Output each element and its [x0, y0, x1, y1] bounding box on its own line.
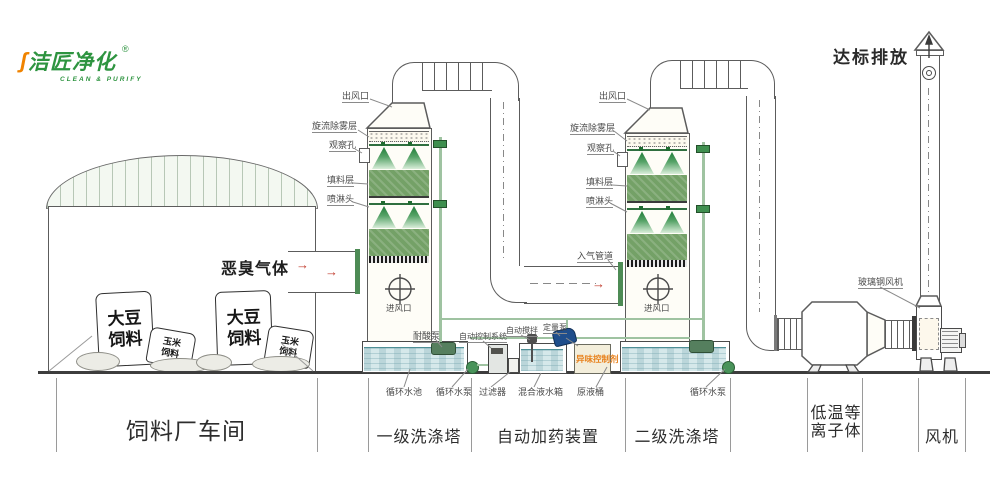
duct-centerline [503, 102, 504, 262]
spray-nozzle [408, 201, 412, 205]
flow-arrow: → [325, 265, 338, 278]
filter-label: 过滤器 [479, 388, 506, 397]
tower1-observation-port [359, 148, 370, 163]
auto-stir-label: 自动搅拌 [506, 327, 538, 337]
plasma-label-line2: 离子体 [810, 423, 861, 440]
feed-pile [76, 352, 120, 371]
plasma-logo-text: 洁匠净化 [821, 328, 849, 335]
fan-motor-cap [959, 333, 966, 348]
duct-elbow [746, 60, 775, 99]
feed-bag-label: 大豆饲料 [223, 306, 264, 350]
chimney-cap-icon [915, 32, 943, 50]
chimney-sensor-dot [926, 70, 932, 76]
flow-arrow: → [592, 277, 605, 290]
odor-agent-label: 异味控制剂 [576, 355, 619, 364]
plasma-inlet-pipe [777, 318, 804, 350]
section-label-workshop: 饲料厂车间 [126, 412, 246, 446]
section-tick [965, 378, 966, 452]
feed-pile [196, 354, 232, 371]
acid-pump-label: 耐酸泵 [413, 332, 440, 343]
feed-bag-label: 大豆饲料 [104, 307, 146, 352]
control-system-label: 自动控制系统 [459, 333, 507, 343]
discharge-arrowhead [926, 36, 932, 44]
tower1-demister-layer [369, 131, 429, 142]
spray-nozzle [381, 201, 385, 205]
spray-nozzle [639, 206, 643, 210]
plasma-label-line1: 低温等 [810, 405, 861, 422]
tower2-outlet-elbow [650, 60, 683, 108]
section-label-dosing: 自动加药装置 [497, 423, 599, 447]
logo-text: 洁匠净化 [28, 46, 116, 76]
stirrer-shaft [531, 343, 533, 362]
section-tick [918, 378, 919, 452]
mixing-tank-water [521, 349, 563, 371]
pump1-label: 循环水泵 [436, 388, 472, 397]
tower2-acid-pump [689, 340, 714, 353]
logo-swoosh-icon: ʃ [20, 48, 27, 74]
spray-nozzle [666, 147, 670, 151]
duct-elbow [490, 62, 519, 101]
tower1-airinlet-label: 进风口 [386, 304, 412, 313]
section-tick [625, 378, 626, 452]
tower2-duct-down [746, 96, 776, 316]
fan-foot [944, 358, 957, 371]
tower2-packing-layer2 [627, 234, 687, 260]
tower1-outlet-elbow [392, 62, 425, 108]
workshop-roof [46, 155, 318, 209]
tower2-demister-label: 旋流除雾层 [570, 124, 615, 135]
plasma-outlet-cone [867, 312, 885, 356]
tower2-spray-label: 喷淋头 [586, 197, 613, 208]
spray-supply-pipe [440, 318, 704, 320]
tower1-circulation-pump [466, 361, 479, 374]
fan-housing-inner [919, 318, 939, 350]
barrel-label: 原液桶 [577, 388, 604, 397]
section-tick [56, 378, 57, 452]
discharge-label: 达标排放 [833, 43, 909, 68]
tower2-inlet-flange [618, 262, 623, 306]
filter-unit [508, 358, 519, 373]
section-label-fan: 风机 [925, 423, 959, 447]
logo-reg-mark: ® [122, 44, 129, 54]
tower2-spray-pipe [702, 142, 705, 342]
section-tick [807, 378, 808, 452]
tower1-outlet-label: 出风口 [342, 92, 369, 103]
tower1-spray-label: 喷淋头 [327, 195, 354, 206]
chimney-flange [916, 50, 944, 56]
spray-nozzle [408, 142, 412, 146]
tower1-top-duct [422, 62, 492, 91]
spray-nozzle [381, 142, 385, 146]
tower1-acid-pump [431, 342, 456, 355]
tower2-packing-layer [627, 175, 687, 203]
tower1-observation-label: 观察孔 [329, 141, 356, 152]
section-tick [862, 378, 863, 452]
section-label-tower2: 二级洗涤塔 [634, 423, 719, 447]
spray-nozzle [639, 147, 643, 151]
frp-fan-label: 玻璃钢风机 [858, 278, 903, 289]
mixtank-label: 混合液水箱 [518, 388, 563, 397]
flow-arrow: → [296, 258, 309, 271]
pipe-valve [433, 140, 447, 148]
chimney-centerline [928, 88, 929, 296]
interstage-duct-horizontal [524, 266, 620, 304]
pool-label: 循环水池 [386, 388, 422, 397]
tower2-top-duct [680, 60, 748, 89]
tower2-demister-layer [627, 136, 687, 147]
tower2-support-grid [627, 260, 687, 267]
control-cabinet-screen [491, 348, 503, 354]
tower2-outlet-label: 出风口 [599, 92, 626, 103]
tower2-packing-label: 填料层 [586, 178, 613, 189]
duct-elbow [490, 264, 527, 303]
tower2-spray-header [627, 149, 687, 151]
plasma-outlet-pipe [885, 320, 913, 349]
section-tick [730, 378, 731, 452]
logo-tagline: CLEAN & PURIFY [60, 76, 143, 83]
pipe-valve [696, 205, 710, 213]
feed-pile [252, 356, 310, 372]
company-logo: ʃ 洁匠净化 ® CLEAN & PURIFY [18, 44, 148, 88]
duct-centerline [530, 283, 596, 284]
tower1-packing-layer2 [369, 229, 429, 256]
tower2-observation-label: 观察孔 [587, 144, 614, 155]
spray-nozzle [666, 206, 670, 210]
tower2-cone [625, 108, 688, 133]
tower2-circulation-pump [722, 361, 735, 374]
tower1-packing-layer [369, 170, 429, 198]
odor-gas-label: 恶臭气体 [221, 255, 289, 279]
tower1-demister-label: 旋流除雾层 [312, 122, 357, 133]
pipe-valve [696, 145, 710, 153]
metering-pump-label: 定量泵 [543, 324, 567, 334]
tower2-observation-port [617, 152, 628, 167]
tower2-airinlet-label: 进风口 [644, 304, 670, 313]
diagram-canvas: ʃ 洁匠净化 ® CLEAN & PURIFY 达标排放 恶臭气体 → → 大豆… [0, 0, 1000, 482]
fan-motor-lines [942, 331, 958, 348]
section-tick [317, 378, 318, 452]
duct-centerline [759, 100, 760, 312]
plasma-inlet-flange [774, 315, 777, 351]
tower1-inlet-flange [355, 249, 360, 294]
pump2-label: 循环水泵 [690, 388, 726, 397]
tower1-packing-label: 填料层 [327, 176, 354, 187]
interstage-duct-down [490, 98, 520, 266]
chimney [920, 50, 940, 302]
tower1-support-grid [369, 256, 429, 263]
section-label-tower1: 一级洗涤塔 [376, 423, 461, 447]
pipe-valve [433, 200, 447, 208]
section-label-plasma: 低温等 离子体 [810, 405, 861, 442]
feed-bag-label: 玉米饲料 [158, 335, 183, 360]
tower1-spray-header [369, 144, 429, 146]
section-tick [368, 378, 369, 452]
tower1-spray-header [369, 203, 429, 205]
gas-inlet-pipe-label: 入气管道 [577, 252, 613, 263]
tower2-spray-header [627, 208, 687, 210]
tower1-spray-pipe [439, 137, 442, 345]
